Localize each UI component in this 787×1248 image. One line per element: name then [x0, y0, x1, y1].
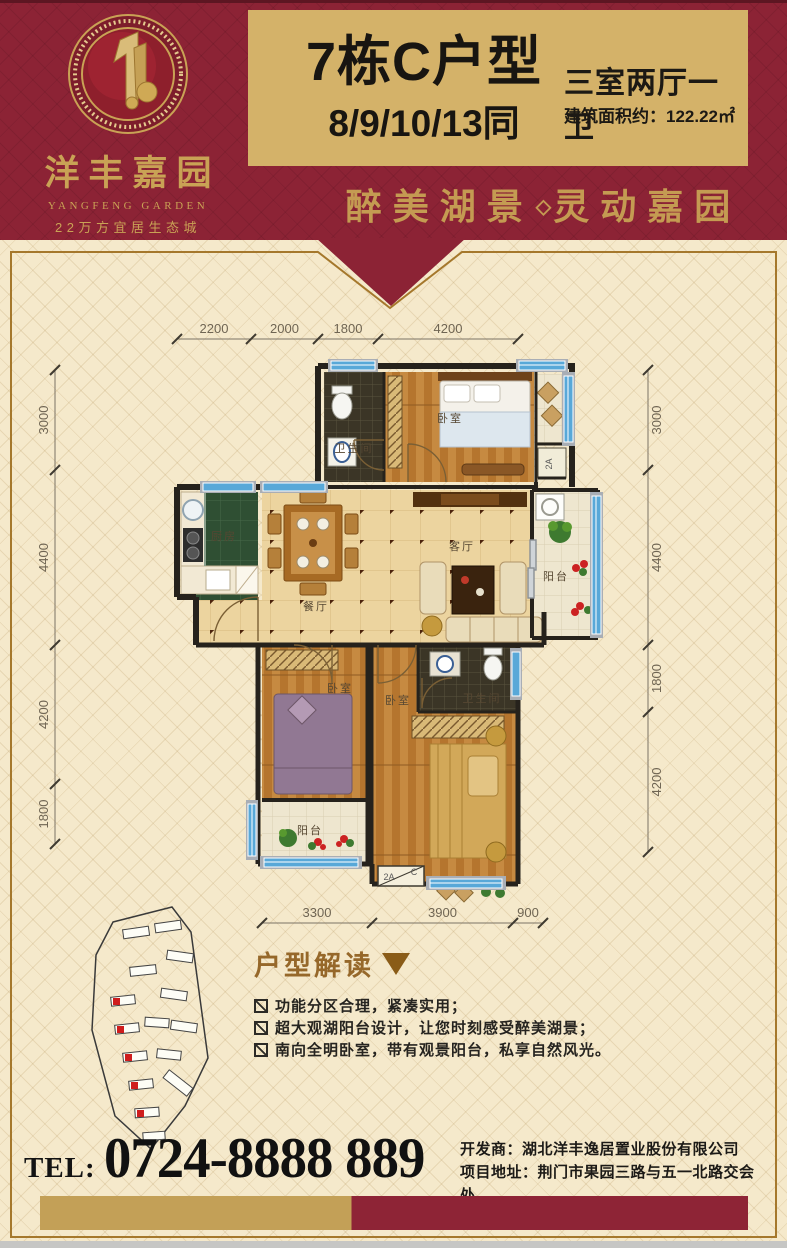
analysis-title-row: 户型解读 [254, 944, 754, 983]
square-bullet-icon [254, 1043, 268, 1057]
logo-name-en: YANGFENG GARDEN [18, 200, 238, 212]
slogan-right: 灵动嘉园 [553, 187, 741, 227]
dim-label: 3000 [36, 406, 51, 435]
logo-medallion-icon [62, 12, 194, 138]
unit-box-left-label: 2A [383, 872, 394, 882]
diamond-icon: ◇ [534, 196, 553, 218]
dim-label: 2000 [270, 321, 299, 336]
room-label: 卧室 [327, 681, 353, 695]
bullet-text: 超大观湖阳台设计，让您时刻感受醉美湖景； [275, 1021, 595, 1036]
title-panel: 7栋C户型 8/9/10/13同 三室两厅一卫 建筑面积约：122.22㎡ [248, 10, 748, 166]
developer-line: 开发商：湖北洋丰逸居置业股份有限公司 [460, 1138, 760, 1161]
slogan-banner: 醉美湖景◇灵动嘉园 [300, 178, 787, 230]
dim-label: 900 [517, 905, 539, 920]
logo-tagline: 22万方宜居生态城 [18, 217, 238, 236]
room-label: 阳台 [543, 569, 569, 583]
dim-label: 4400 [649, 543, 664, 572]
area-line: 建筑面积约：122.22㎡ [564, 102, 754, 127]
floorplan: 2A C 2A 卫生间卧室厨房餐厅客厅阳台卧室卧室卫生间阳台 220020001… [25, 300, 680, 955]
dim-label: 4200 [649, 768, 664, 797]
bullet-text: 南向全明卧室，带有观景阳台，私享自然风光。 [275, 1043, 611, 1058]
room-label: 厨房 [211, 530, 237, 543]
footer-color-bar [40, 1196, 748, 1230]
dim-bottom: 33003900900 [257, 905, 548, 928]
dim-label: 4200 [434, 321, 463, 336]
room-label: 卧室 [385, 693, 411, 707]
triangle-down-icon [382, 953, 410, 975]
analysis-bullet: 南向全明卧室，带有观景阳台，私享自然风光。 [254, 1043, 754, 1058]
analysis-bullets: 功能分区合理，紧凑实用；超大观湖阳台设计，让您时刻感受醉美湖景；南向全明卧室，带… [254, 999, 754, 1058]
logo-name-cn: 洋丰嘉园 [18, 145, 238, 196]
dim-label: 1800 [334, 321, 363, 336]
room-label: 阳台 [297, 823, 323, 837]
analysis-bullet: 功能分区合理，紧凑实用； [254, 999, 754, 1014]
room-label: 卫生间 [463, 691, 502, 705]
tel-label: TEL: [24, 1152, 96, 1185]
dim-label: 1800 [649, 664, 664, 693]
square-bullet-icon [254, 1021, 268, 1035]
dim-top: 2200200018004200 [172, 321, 523, 344]
pennant-shape [316, 238, 466, 306]
analysis-bullet: 超大观湖阳台设计，让您时刻感受醉美湖景； [254, 1021, 754, 1036]
dim-label: 4400 [36, 543, 51, 572]
dim-label: 3300 [303, 905, 332, 920]
top-border-line [0, 0, 787, 3]
shaft-label: 2A [544, 458, 554, 469]
unit-title: 7栋C户型 [284, 32, 564, 92]
dim-label: 3900 [428, 905, 457, 920]
slogan-left: 醉美湖景 [346, 187, 534, 227]
dim-label: 1800 [36, 800, 51, 829]
room-label: 客厅 [449, 539, 475, 553]
analysis-section: 户型解读 功能分区合理，紧凑实用；超大观湖阳台设计，让您时刻感受醉美湖景；南向全… [254, 944, 754, 1065]
bottom-edge-strip [0, 1241, 787, 1248]
brand-logo: 洋丰嘉园 YANGFENG GARDEN 22万方宜居生态城 [18, 12, 238, 236]
dim-label: 2200 [200, 321, 229, 336]
room-label: 餐厅 [303, 599, 329, 613]
dim-left: 3000440042001800 [36, 365, 60, 849]
poster-page: 洋丰嘉园 YANGFENG GARDEN 22万方宜居生态城 7栋C户型 8/9… [0, 0, 787, 1248]
dim-right: 3000440018004200 [643, 365, 664, 857]
dim-label: 3000 [649, 406, 664, 435]
room-label: 卫生间 [335, 441, 374, 455]
analysis-title: 户型解读 [254, 944, 374, 983]
dim-label: 4200 [36, 700, 51, 729]
square-bullet-icon [254, 999, 268, 1013]
site-plan [75, 900, 225, 1160]
unit-floors: 8/9/10/13同 [284, 102, 564, 146]
tel-number: 0724-8888 889 [104, 1126, 424, 1191]
bullet-text: 功能分区合理，紧凑实用； [275, 999, 467, 1014]
unit-box-right-label: C [411, 867, 418, 877]
room-label: 卧室 [437, 411, 463, 425]
